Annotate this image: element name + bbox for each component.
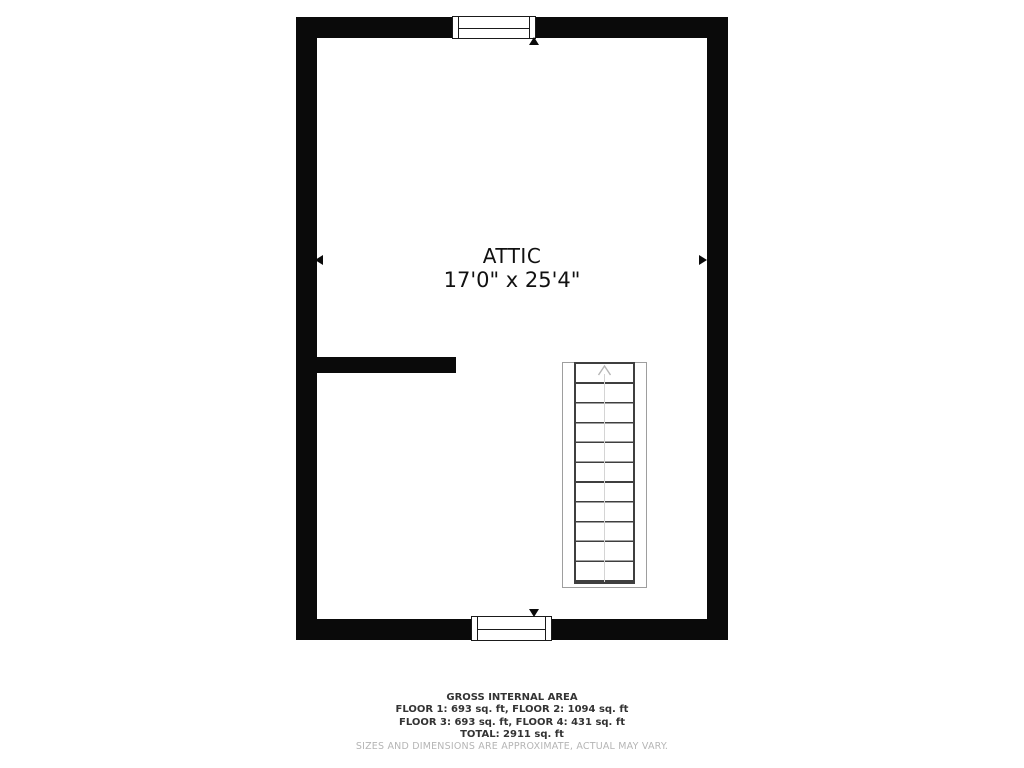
window-frame-line	[529, 17, 530, 38]
room-label-block: ATTIC 17'0" x 25'4"	[317, 245, 707, 292]
window-top	[452, 16, 536, 39]
gross-internal-area-title: GROSS INTERNAL AREA	[0, 692, 1024, 704]
interior-wall	[300, 357, 456, 373]
window-bottom	[471, 616, 552, 641]
measurement-arrow-bottom-icon	[529, 609, 539, 617]
room-name: ATTIC	[317, 245, 707, 268]
window-pane-line	[459, 28, 529, 29]
total-area: TOTAL: 2911 sq. ft	[0, 729, 1024, 741]
window-pane-line	[478, 629, 545, 630]
stairs-center-line	[604, 374, 605, 582]
window-frame-line	[545, 617, 546, 640]
stairs-up-arrow-icon	[596, 363, 613, 379]
disclaimer: SIZES AND DIMENSIONS ARE APPROXIMATE, AC…	[0, 741, 1024, 753]
floorplan-canvas: ATTIC 17'0" x 25'4" GROSS INTERNAL AREA …	[0, 0, 1024, 768]
floor-areas-line-2: FLOOR 3: 693 sq. ft, FLOOR 4: 431 sq. ft	[0, 717, 1024, 729]
area-summary: GROSS INTERNAL AREA FLOOR 1: 693 sq. ft,…	[0, 692, 1024, 753]
room-attic-walls	[296, 17, 728, 640]
measurement-arrow-top-icon	[529, 37, 539, 45]
room-dimensions: 17'0" x 25'4"	[317, 268, 707, 292]
floor-areas-line-1: FLOOR 1: 693 sq. ft, FLOOR 2: 1094 sq. f…	[0, 704, 1024, 716]
